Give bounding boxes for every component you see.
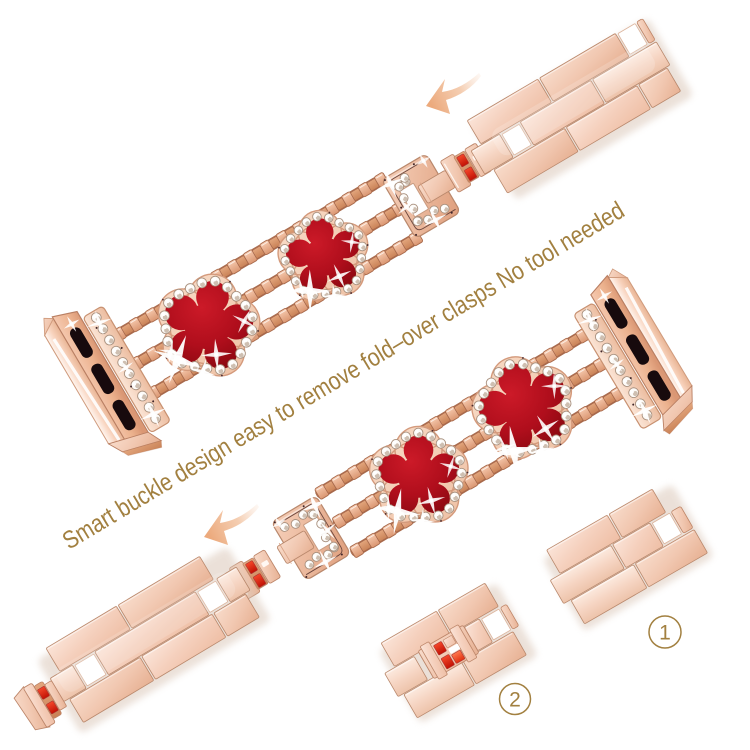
svg-text:1: 1 (659, 622, 671, 645)
svg-text:2: 2 (509, 689, 521, 712)
